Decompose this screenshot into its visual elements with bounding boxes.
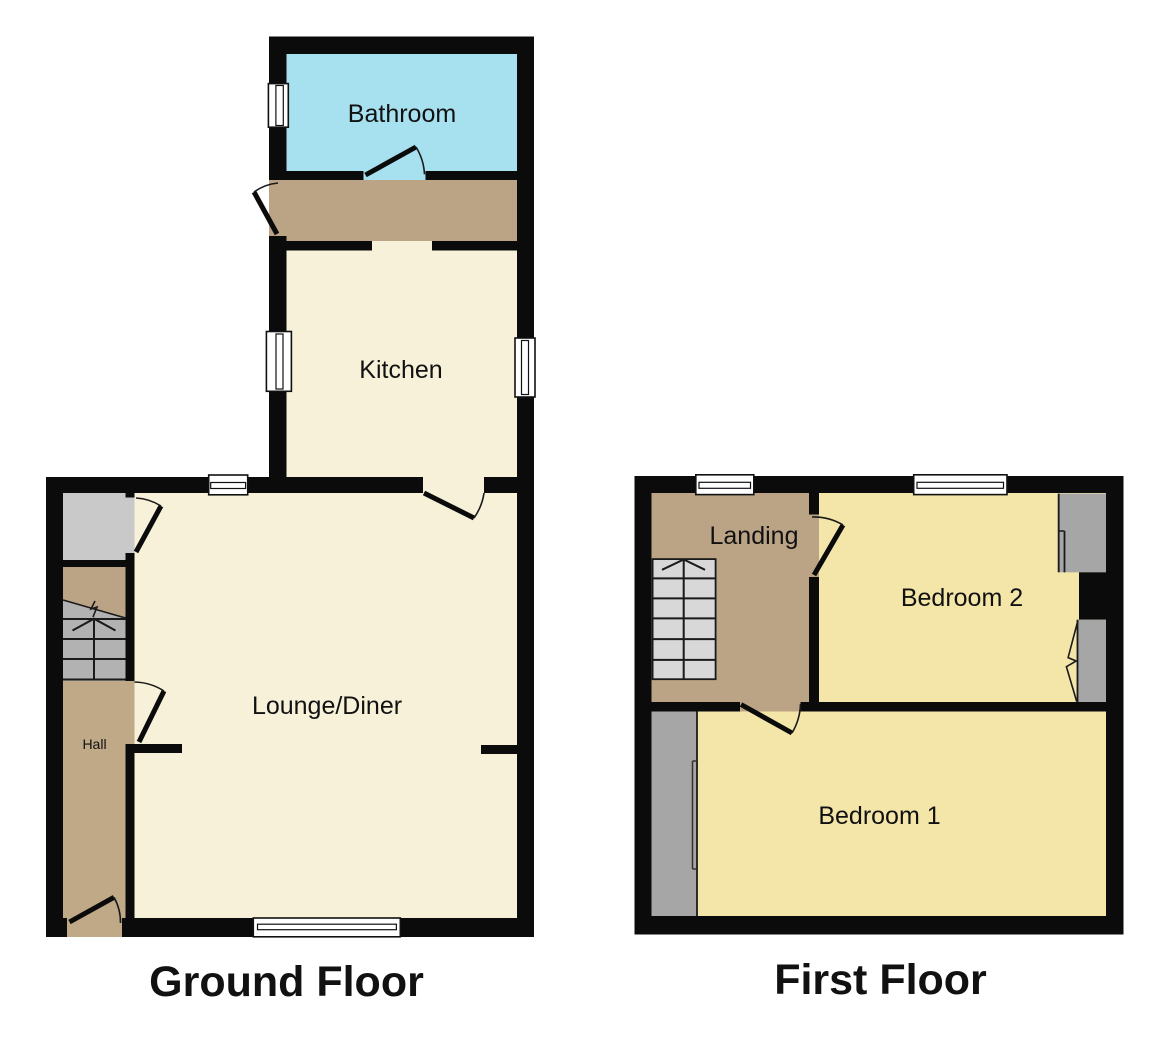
svg-text:Lounge/Diner: Lounge/Diner bbox=[252, 692, 402, 720]
svg-text:Hall: Hall bbox=[82, 736, 106, 752]
svg-text:Ground Floor: Ground Floor bbox=[149, 958, 424, 1006]
svg-text:First Floor: First Floor bbox=[774, 956, 987, 1004]
svg-text:Kitchen: Kitchen bbox=[359, 356, 442, 384]
svg-text:Bedroom 2: Bedroom 2 bbox=[901, 584, 1023, 612]
svg-text:Bedroom 1: Bedroom 1 bbox=[818, 802, 940, 830]
svg-text:Landing: Landing bbox=[710, 522, 799, 550]
svg-text:Bathroom: Bathroom bbox=[348, 100, 456, 128]
